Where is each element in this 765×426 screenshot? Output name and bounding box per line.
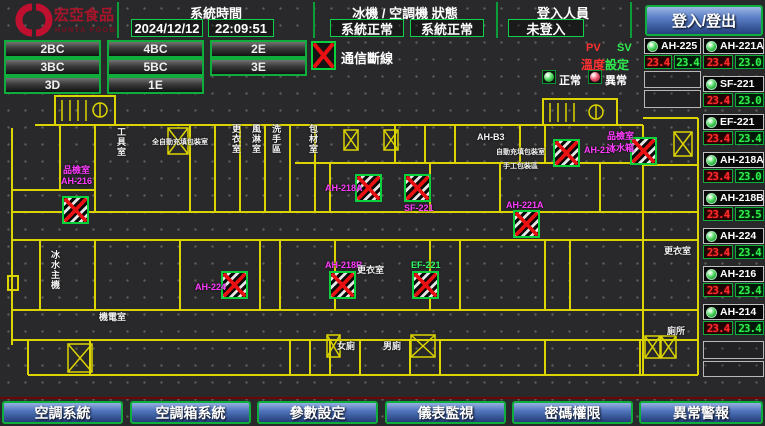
map-label: 自動充填包裝室 (496, 149, 545, 156)
map-label: AH-221A (506, 201, 544, 210)
unit-status-lamp-icon (706, 117, 717, 128)
unit-ah-218b-sv-value: 23.5 (735, 207, 764, 221)
unit-ah-218b-pv-value: 23.4 (703, 207, 733, 221)
map-comm-loss-marker-icon[interactable] (553, 139, 580, 167)
comm-loss-label: 通信斷線 (341, 48, 393, 67)
unit-status-lamp-icon (706, 269, 717, 280)
floor-button-3d[interactable]: 3D (4, 76, 101, 94)
map-label: SF-221 (404, 204, 434, 213)
unit-ah-218a[interactable]: AH-218A (703, 152, 764, 168)
nav-param-settings[interactable]: 參數設定 (257, 401, 378, 424)
set-label: 設定 (605, 58, 629, 72)
map-comm-loss-marker-icon[interactable] (630, 137, 657, 165)
floor-button-5bc[interactable]: 5BC (107, 58, 204, 76)
unit-name-label: SF-221 (720, 78, 754, 90)
unit-status-lamp-icon (706, 79, 717, 90)
unit-status-lamp-icon (706, 41, 717, 52)
unit-ah-224-sv-value: 23.4 (735, 245, 764, 259)
unit-name-label: EF-221 (720, 116, 754, 128)
header-divider (630, 2, 632, 38)
unit-ef-221-sv-value: 23.4 (735, 131, 764, 145)
map-label: 廁所 (667, 327, 685, 336)
floor-button-2bc[interactable]: 2BC (4, 40, 101, 58)
map-label: 品檢室 (607, 132, 634, 141)
normal-lamp-icon (542, 70, 556, 84)
abnormal-label: 異常 (605, 72, 627, 88)
map-label: 男廁 (383, 342, 401, 351)
map-label: 品檢室 (63, 166, 90, 175)
login-user-display: 未登入 (508, 19, 584, 37)
unit-ah-216-sv-value: 23.4 (735, 283, 764, 297)
system-date-display: 2024/12/12 (131, 19, 203, 37)
map-label: 手工包裝區 (503, 163, 538, 170)
floor-button-1e[interactable]: 1E (107, 76, 204, 94)
sv-header-label: SV (617, 42, 632, 54)
unit-ah-214[interactable]: AH-214 (703, 304, 764, 320)
unit-ah-225-pv-value: 23.4 (644, 55, 672, 69)
unit-sf-221[interactable]: SF-221 (703, 76, 764, 92)
normal-label: 正常 (559, 72, 581, 88)
empty-slot (644, 71, 701, 88)
brand-subtitle: HUNYA FOODS (55, 27, 118, 34)
unit-ef-221[interactable]: EF-221 (703, 114, 764, 130)
nav-alarm[interactable]: 異常警報 (639, 401, 763, 424)
map-comm-loss-marker-icon[interactable] (404, 174, 431, 202)
unit-name-label: AH-214 (720, 306, 756, 318)
unit-ah-224[interactable]: AH-224 (703, 228, 764, 244)
brand-name: 宏亞食品 (54, 6, 114, 24)
nav-password[interactable]: 密碼權限 (512, 401, 633, 424)
comm-loss-icon (311, 41, 336, 70)
unit-name-label: AH-225 (661, 40, 697, 52)
nav-separator (0, 397, 765, 399)
map-comm-loss-marker-icon[interactable] (329, 271, 356, 299)
map-label: 冰水主機 (50, 250, 59, 290)
map-label: 冰水箱 (607, 144, 634, 153)
map-label: 包材室 (308, 124, 317, 154)
map-label: AH-216 (61, 177, 92, 186)
nav-meter-monitor[interactable]: 儀表監視 (385, 401, 506, 424)
map-label: 全自動充填包裝室 (152, 139, 208, 146)
unit-sf-221-pv-value: 23.4 (703, 93, 733, 107)
nav-ac-system[interactable]: 空調系統 (2, 401, 123, 424)
floor-button-2e[interactable]: 2E (210, 40, 307, 58)
floor-button-3e[interactable]: 3E (210, 58, 307, 76)
nav-ahu-system[interactable]: 空調箱系統 (130, 401, 251, 424)
unit-status-lamp-icon (706, 155, 717, 166)
unit-ah-214-sv-value: 23.4 (735, 321, 764, 335)
unit-name-label: AH-218A (720, 154, 764, 166)
map-label: 女廁 (337, 342, 355, 351)
map-label: AH-224 (195, 283, 226, 292)
header-divider (313, 2, 315, 38)
unit-ah-214-pv-value: 23.4 (703, 321, 733, 335)
map-label: 機電室 (99, 313, 126, 322)
shaft-x-icon (68, 128, 692, 372)
unit-ah-225-sv-value: 23.4 (674, 55, 701, 69)
unit-name-label: AH-224 (720, 230, 756, 242)
map-label: 洗手區 (271, 124, 280, 154)
unit-ef-221-pv-value: 23.4 (703, 131, 733, 145)
floor-button-3bc[interactable]: 3BC (4, 58, 101, 76)
map-label: AH-218A (325, 184, 363, 193)
unit-ah-218a-sv-value: 23.0 (735, 169, 764, 183)
login-logout-button[interactable]: 登入/登出 (645, 5, 763, 36)
unit-ah-221a-sv-value: 23.0 (735, 55, 764, 69)
unit-status-lamp-icon (647, 41, 658, 52)
map-label: AH-B3 (477, 133, 505, 142)
unit-ah-224-pv-value: 23.4 (703, 245, 733, 259)
stair-icon (62, 100, 603, 122)
unit-ah-216-pv-value: 23.4 (703, 283, 733, 297)
empty-slot (644, 90, 701, 108)
empty-slot (703, 341, 764, 359)
unit-ah-218a-pv-value: 23.4 (703, 169, 733, 183)
unit-ah-221a-pv-value: 23.4 (703, 55, 733, 69)
pv-header-label: PV (586, 42, 601, 54)
ahu-status-display: 系統正常 (410, 19, 484, 37)
unit-ah-225[interactable]: AH-225 (644, 38, 701, 54)
map-label: 風淋室 (251, 124, 260, 154)
unit-status-lamp-icon (706, 231, 717, 242)
map-label: 更衣室 (664, 247, 691, 256)
unit-ah-218b[interactable]: AH-218B (703, 190, 764, 206)
unit-name-label: AH-221A (720, 40, 764, 52)
header-divider (117, 2, 119, 38)
map-comm-loss-marker-icon[interactable] (513, 210, 540, 238)
map-label: EF-221 (411, 261, 441, 270)
unit-sf-221-sv-value: 23.0 (735, 93, 764, 107)
unit-name-label: AH-218B (720, 192, 764, 204)
unit-name-label: AH-216 (720, 268, 756, 280)
empty-slot (703, 361, 764, 377)
unit-ah-221a[interactable]: AH-221A (703, 38, 764, 54)
unit-status-lamp-icon (706, 307, 717, 318)
system-clock-display: 22:09:51 (208, 19, 274, 37)
brand-logo: 宏亞食品 HUNYA FOODS (6, 3, 118, 37)
map-comm-loss-marker-icon[interactable] (412, 271, 439, 299)
floor-button-4bc[interactable]: 4BC (107, 40, 204, 58)
map-comm-loss-marker-icon[interactable] (62, 196, 89, 224)
abnormal-lamp-icon (588, 70, 602, 84)
chiller-status-display: 系統正常 (330, 19, 404, 37)
unit-status-lamp-icon (706, 193, 717, 204)
map-label: 工具室 (116, 127, 125, 157)
map-label: 更衣室 (231, 124, 240, 154)
unit-ah-216[interactable]: AH-216 (703, 266, 764, 282)
map-label: 更衣室 (357, 266, 384, 275)
